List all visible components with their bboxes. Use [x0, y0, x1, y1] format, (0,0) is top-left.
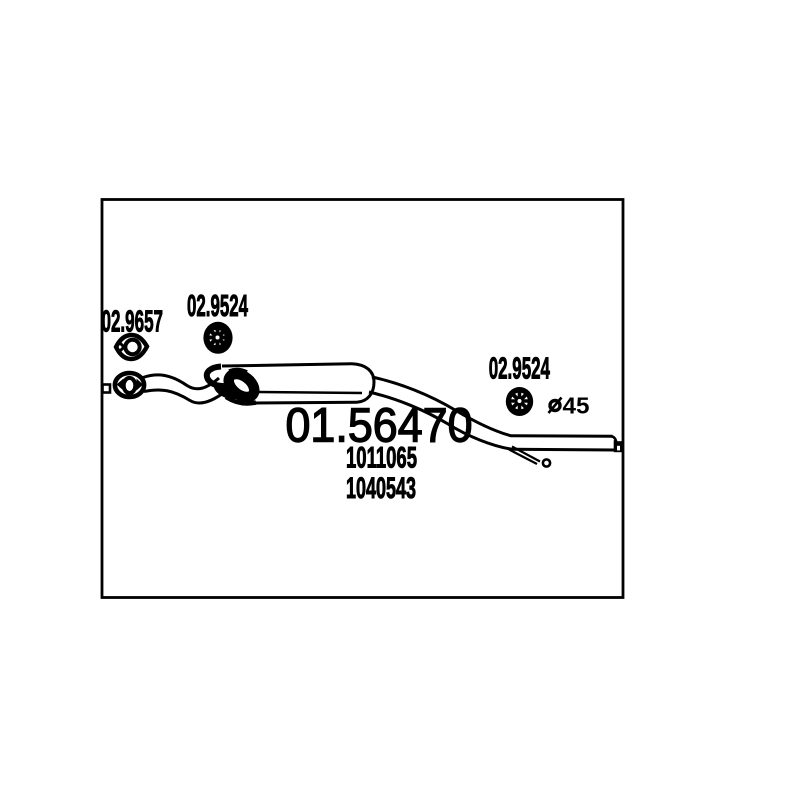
- svg-text:02.9524: 02.9524: [187, 288, 248, 323]
- svg-text:02.9524: 02.9524: [489, 351, 551, 386]
- svg-text:45: 45: [563, 393, 590, 419]
- svg-text:1040543: 1040543: [346, 472, 416, 505]
- svg-text:1011065: 1011065: [346, 442, 417, 475]
